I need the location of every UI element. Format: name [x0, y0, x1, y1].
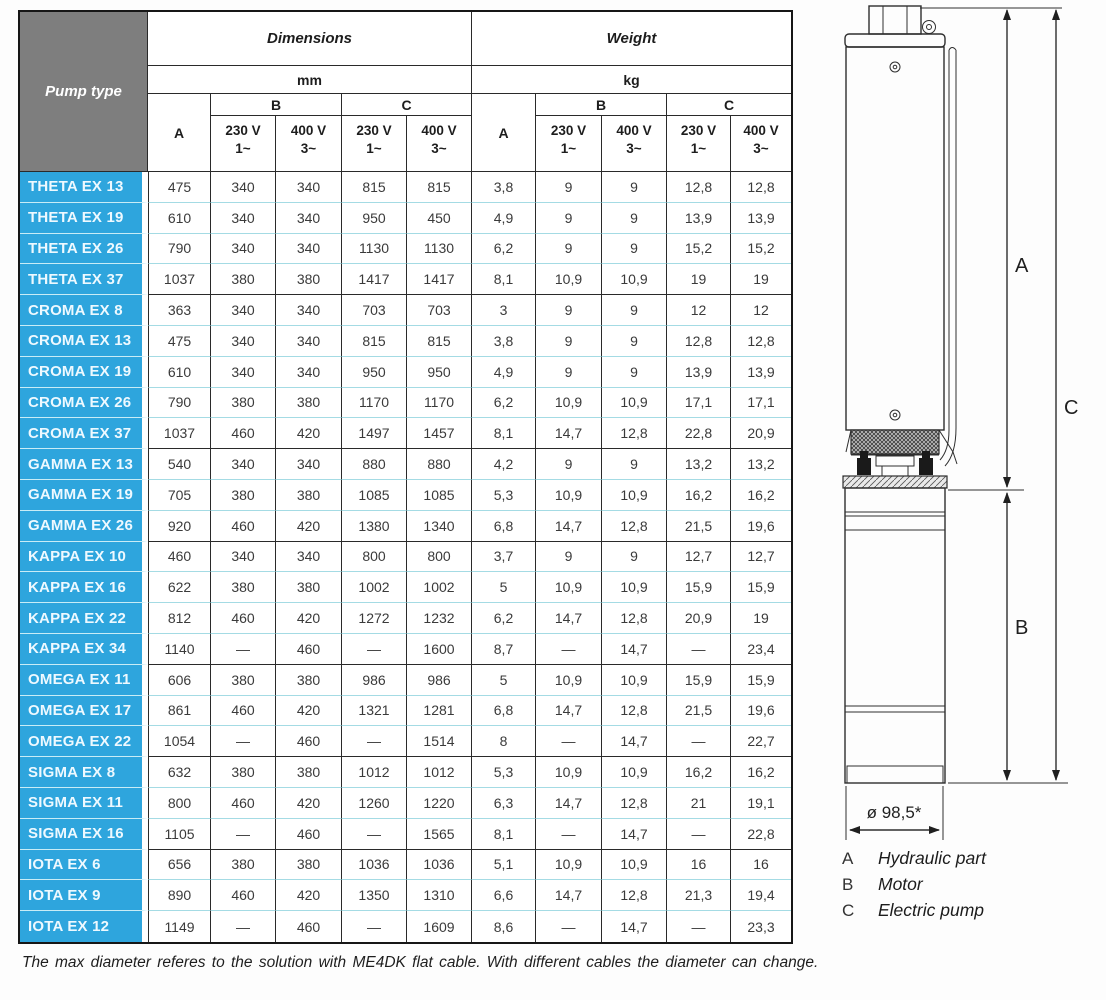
weight-value-cell: 13,9 — [731, 357, 791, 388]
diameter-label: ø 98,5* — [867, 803, 922, 822]
weight-value-cell: 14,7 — [536, 880, 602, 911]
dimension-value-cell: 460 — [148, 542, 211, 573]
weight-value-cell: 16,2 — [731, 480, 791, 511]
voltage-header-cell: 230 V1~ — [342, 116, 407, 172]
weight-value-cell: 8,6 — [472, 911, 536, 942]
dimension-value-cell: 1609 — [407, 911, 472, 942]
weight-value-cell: 14,7 — [602, 819, 667, 850]
pump-name-cell: OMEGA EX 11 — [20, 665, 148, 696]
weight-value-cell: 12,8 — [731, 326, 791, 357]
weight-value-cell: 13,2 — [731, 449, 791, 480]
dimension-value-cell: 340 — [276, 449, 342, 480]
table-row: OMEGA EX 17861460420132112816,814,712,82… — [20, 696, 791, 727]
pump-name-cell: SIGMA EX 8 — [20, 757, 148, 788]
dimension-value-cell: 460 — [211, 788, 276, 819]
weight-value-cell: 9 — [536, 234, 602, 265]
dimension-value-cell: 340 — [211, 357, 276, 388]
dimension-value-cell: 380 — [276, 388, 342, 419]
weight-value-cell: 12,8 — [602, 418, 667, 449]
dimension-value-cell: 861 — [148, 696, 211, 727]
weight-value-cell: 22,8 — [731, 819, 791, 850]
weight-value-cell: 15,9 — [667, 665, 731, 696]
weight-value-cell: 10,9 — [602, 264, 667, 295]
voltage-header-cell: 230 V1~ — [211, 116, 276, 172]
dimension-value-cell: 380 — [211, 665, 276, 696]
dimension-value-cell: 1012 — [342, 757, 407, 788]
weight-value-cell: 19,6 — [731, 696, 791, 727]
dimension-value-cell: 340 — [276, 203, 342, 234]
weight-value-cell: 9 — [602, 295, 667, 326]
table-row: THETA EX 196103403409504504,99913,913,9 — [20, 203, 791, 234]
weight-value-cell: 9 — [536, 357, 602, 388]
dimension-value-cell: 420 — [276, 511, 342, 542]
weight-value-cell: 16,2 — [667, 480, 731, 511]
weight-value-cell: 22,8 — [667, 418, 731, 449]
dimension-value-cell: 340 — [276, 295, 342, 326]
weight-value-cell: — — [536, 726, 602, 757]
weight-value-cell: 21 — [667, 788, 731, 819]
dimension-value-cell: 460 — [276, 726, 342, 757]
dimension-value-cell: 340 — [211, 326, 276, 357]
weight-value-cell: 15,2 — [667, 234, 731, 265]
dimension-value-cell: 705 — [148, 480, 211, 511]
legend-key: C — [842, 899, 878, 923]
voltage-header-cell: 400 V3~ — [731, 116, 791, 172]
dimension-value-cell: 1497 — [342, 418, 407, 449]
weight-group-header: Weight — [472, 12, 791, 66]
weight-value-cell: 5,3 — [472, 757, 536, 788]
weight-value-cell: 13,9 — [667, 357, 731, 388]
dimension-value-cell: 1037 — [148, 418, 211, 449]
dimension-value-cell: 1417 — [342, 264, 407, 295]
weight-value-cell: 21,3 — [667, 880, 731, 911]
weight-value-cell: 9 — [602, 172, 667, 203]
dimension-value-cell: 380 — [276, 665, 342, 696]
weight-value-cell: 20,9 — [667, 603, 731, 634]
weight-value-cell: 10,9 — [602, 665, 667, 696]
weight-value-cell: 6,8 — [472, 511, 536, 542]
dimension-value-cell: 986 — [342, 665, 407, 696]
legend-key: B — [842, 873, 878, 897]
unit-mm-header: mm — [148, 66, 472, 94]
dimension-value-cell: 380 — [211, 850, 276, 881]
dimension-value-cell: 380 — [211, 757, 276, 788]
dimension-value-cell: 632 — [148, 757, 211, 788]
dimension-value-cell: 460 — [211, 696, 276, 727]
weight-value-cell: 15,9 — [667, 572, 731, 603]
weight-value-cell: 12 — [667, 295, 731, 326]
dimension-value-cell: 950 — [342, 203, 407, 234]
table-row: GAMMA EX 135403403408808804,29913,213,2 — [20, 449, 791, 480]
dimension-value-cell: 340 — [211, 203, 276, 234]
dimension-value-cell: 1170 — [407, 388, 472, 419]
dimension-value-cell: 610 — [148, 203, 211, 234]
dimension-value-cell: 420 — [276, 880, 342, 911]
weight-value-cell: 10,9 — [536, 665, 602, 696]
dimension-value-cell: 815 — [407, 172, 472, 203]
pump-name-cell: KAPPA EX 22 — [20, 603, 148, 634]
pump-name-cell: KAPPA EX 16 — [20, 572, 148, 603]
table-row: CROMA EX 196103403409509504,99913,913,9 — [20, 357, 791, 388]
weight-value-cell: 10,9 — [536, 264, 602, 295]
pump-name-cell: CROMA EX 19 — [20, 357, 148, 388]
weight-value-cell: 3 — [472, 295, 536, 326]
table-row: THETA EX 26790340340113011306,29915,215,… — [20, 234, 791, 265]
dimension-value-cell: 363 — [148, 295, 211, 326]
dimension-value-cell: 1220 — [407, 788, 472, 819]
dimension-value-cell: 622 — [148, 572, 211, 603]
weight-value-cell: 23,4 — [731, 634, 791, 665]
dimension-value-cell: 1321 — [342, 696, 407, 727]
dimension-value-cell: 460 — [276, 819, 342, 850]
weight-value-cell: 19 — [731, 603, 791, 634]
dimension-value-cell: 890 — [148, 880, 211, 911]
dimension-value-cell: 610 — [148, 357, 211, 388]
weight-value-cell: 23,3 — [731, 911, 791, 942]
dim-c-header: C — [342, 94, 472, 116]
dimension-value-cell: 703 — [407, 295, 472, 326]
dimension-value-cell: 1310 — [407, 880, 472, 911]
pump-name-cell: CROMA EX 26 — [20, 388, 148, 419]
table-row: CROMA EX 371037460420149714578,114,712,8… — [20, 418, 791, 449]
dimension-value-cell: 1140 — [148, 634, 211, 665]
weight-value-cell: 17,1 — [667, 388, 731, 419]
dimension-value-cell: — — [211, 726, 276, 757]
weight-value-cell: 12 — [731, 295, 791, 326]
dimension-value-cell: — — [211, 634, 276, 665]
table-row: KAPPA EX 341140—460—16008,7—14,7—23,4 — [20, 634, 791, 665]
dimension-value-cell: 380 — [276, 264, 342, 295]
wt-b-header: B — [536, 94, 667, 116]
weight-value-cell: 12,8 — [602, 511, 667, 542]
header-row-groups: Pump type Dimensions Weight — [20, 12, 791, 66]
weight-value-cell: 9 — [602, 326, 667, 357]
dimension-value-cell: 812 — [148, 603, 211, 634]
weight-value-cell: 9 — [602, 234, 667, 265]
weight-value-cell: — — [536, 819, 602, 850]
dimension-value-cell: 380 — [276, 480, 342, 511]
dimension-value-cell: 1036 — [407, 850, 472, 881]
table-row: THETA EX 134753403408158153,89912,812,8 — [20, 172, 791, 203]
pump-name-cell: CROMA EX 13 — [20, 326, 148, 357]
table-row: IOTA EX 9890460420135013106,614,712,821,… — [20, 880, 791, 911]
weight-value-cell: 4,2 — [472, 449, 536, 480]
dimension-value-cell: 340 — [276, 357, 342, 388]
weight-value-cell: 9 — [602, 357, 667, 388]
dimension-value-cell: 1260 — [342, 788, 407, 819]
weight-value-cell: — — [667, 634, 731, 665]
weight-value-cell: 12,8 — [602, 696, 667, 727]
dimension-value-cell: 1232 — [407, 603, 472, 634]
weight-value-cell: 19,6 — [731, 511, 791, 542]
table-row: KAPPA EX 1662238038010021002510,910,915,… — [20, 572, 791, 603]
dimension-value-cell: 380 — [211, 572, 276, 603]
table-row: CROMA EX 83633403407037033991212 — [20, 295, 791, 326]
footer-note: The max diameter referes to the solution… — [22, 954, 852, 972]
motor-body — [845, 488, 945, 783]
pump-technical-drawing: A B C ø 98,5* — [816, 0, 1106, 850]
weight-value-cell: 16 — [731, 850, 791, 881]
voltage-header-cell: 230 V1~ — [667, 116, 731, 172]
dimension-value-cell: 986 — [407, 665, 472, 696]
dimension-value-cell: 1105 — [148, 819, 211, 850]
pump-type-header: Pump type — [20, 12, 148, 172]
pump-name-cell: KAPPA EX 10 — [20, 542, 148, 573]
weight-value-cell: 9 — [602, 449, 667, 480]
dimension-value-cell: 1281 — [407, 696, 472, 727]
dimension-value-cell: 340 — [276, 326, 342, 357]
dimension-value-cell: 790 — [148, 388, 211, 419]
weight-value-cell: 14,7 — [536, 788, 602, 819]
dimension-value-cell: 460 — [276, 911, 342, 942]
weight-value-cell: 9 — [536, 326, 602, 357]
legend-item: CElectric pump — [842, 898, 986, 924]
dimension-value-cell: 420 — [276, 418, 342, 449]
dimension-value-cell: 1350 — [342, 880, 407, 911]
dimension-value-cell: 800 — [407, 542, 472, 573]
pump-name-cell: THETA EX 19 — [20, 203, 148, 234]
dimension-value-cell: 380 — [211, 388, 276, 419]
table-row: IOTA EX 121149—460—16098,6—14,7—23,3 — [20, 911, 791, 942]
table-row: CROMA EX 134753403408158153,89912,812,8 — [20, 326, 791, 357]
dimension-value-cell: 1085 — [342, 480, 407, 511]
dimensions-group-header: Dimensions — [148, 12, 472, 66]
weight-value-cell: 12,8 — [667, 326, 731, 357]
dimension-value-cell: 800 — [342, 542, 407, 573]
weight-value-cell: 15,9 — [731, 572, 791, 603]
voltage-header-cell: 230 V1~ — [536, 116, 602, 172]
dimension-value-cell: 340 — [211, 172, 276, 203]
weight-value-cell: 8 — [472, 726, 536, 757]
weight-value-cell: 13,9 — [667, 203, 731, 234]
pump-name-cell: IOTA EX 9 — [20, 880, 148, 911]
diameter-dimension: ø 98,5* — [846, 786, 943, 840]
dimension-value-cell: 380 — [211, 480, 276, 511]
dimension-value-cell: 340 — [211, 449, 276, 480]
weight-value-cell: 20,9 — [731, 418, 791, 449]
weight-value-cell: 14,7 — [536, 511, 602, 542]
dimension-value-cell: 815 — [342, 326, 407, 357]
weight-value-cell: 4,9 — [472, 357, 536, 388]
pump-name-cell: THETA EX 37 — [20, 264, 148, 295]
weight-value-cell: 16 — [667, 850, 731, 881]
dimension-value-cell: 880 — [342, 449, 407, 480]
weight-value-cell: 3,7 — [472, 542, 536, 573]
dimension-value-cell: — — [211, 819, 276, 850]
dimension-value-cell: 1149 — [148, 911, 211, 942]
pump-name-cell: CROMA EX 8 — [20, 295, 148, 326]
weight-value-cell: 14,7 — [536, 603, 602, 634]
dimension-value-cell: 380 — [276, 572, 342, 603]
table-row: GAMMA EX 26920460420138013406,814,712,82… — [20, 511, 791, 542]
weight-value-cell: 10,9 — [536, 850, 602, 881]
table-row: OMEGA EX 221054—460—15148—14,7—22,7 — [20, 726, 791, 757]
weight-value-cell: 14,7 — [536, 696, 602, 727]
weight-value-cell: 10,9 — [536, 757, 602, 788]
voltage-header-cell: 400 V3~ — [276, 116, 342, 172]
dimension-value-cell: 1340 — [407, 511, 472, 542]
weight-value-cell: 10,9 — [602, 572, 667, 603]
pump-name-cell: GAMMA EX 19 — [20, 480, 148, 511]
dimension-value-cell: 1457 — [407, 418, 472, 449]
dimension-value-cell: 880 — [407, 449, 472, 480]
weight-value-cell: 8,1 — [472, 819, 536, 850]
weight-value-cell: 21,5 — [667, 696, 731, 727]
weight-value-cell: 6,6 — [472, 880, 536, 911]
table-row: SIGMA EX 161105—460—15658,1—14,7—22,8 — [20, 819, 791, 850]
weight-value-cell: 10,9 — [536, 388, 602, 419]
cable-guard — [940, 48, 956, 467]
pump-name-cell: OMEGA EX 17 — [20, 696, 148, 727]
pump-name-cell: THETA EX 13 — [20, 172, 148, 203]
weight-value-cell: 10,9 — [602, 480, 667, 511]
pump-name-cell: THETA EX 26 — [20, 234, 148, 265]
dim-a-header: A — [148, 94, 211, 172]
weight-value-cell: 15,2 — [731, 234, 791, 265]
weight-value-cell: 13,9 — [731, 203, 791, 234]
dimension-value-cell: 340 — [276, 542, 342, 573]
pump-discharge-head — [869, 6, 936, 34]
weight-value-cell: 10,9 — [602, 388, 667, 419]
dim-label-b: B — [1015, 617, 1028, 639]
weight-value-cell: 14,7 — [602, 634, 667, 665]
pump-name-cell: SIGMA EX 11 — [20, 788, 148, 819]
dimension-value-cell: 340 — [211, 295, 276, 326]
dimension-value-cell: 790 — [148, 234, 211, 265]
dimension-value-cell: 1037 — [148, 264, 211, 295]
weight-value-cell: 12,8 — [602, 880, 667, 911]
weight-value-cell: 12,8 — [667, 172, 731, 203]
weight-value-cell: 9 — [536, 203, 602, 234]
dimension-value-cell: 340 — [211, 234, 276, 265]
dimension-value-cell: 420 — [276, 788, 342, 819]
weight-value-cell: — — [667, 819, 731, 850]
dimension-value-cell: 475 — [148, 326, 211, 357]
pump-spec-table: Pump type Dimensions Weight mm kg A B C … — [18, 10, 793, 944]
dimension-value-cell: 1380 — [342, 511, 407, 542]
weight-value-cell: 12,8 — [602, 603, 667, 634]
dimension-value-cell: 380 — [276, 757, 342, 788]
weight-value-cell: 14,7 — [602, 726, 667, 757]
weight-value-cell: 14,7 — [536, 418, 602, 449]
dimension-value-cell: 800 — [148, 788, 211, 819]
weight-value-cell: — — [536, 911, 602, 942]
table-row: SIGMA EX 11800460420126012206,314,712,82… — [20, 788, 791, 819]
weight-value-cell: 13,2 — [667, 449, 731, 480]
legend-key: A — [842, 847, 878, 871]
weight-value-cell: 5,1 — [472, 850, 536, 881]
dimension-value-cell: 380 — [211, 264, 276, 295]
pump-name-cell: KAPPA EX 34 — [20, 634, 148, 665]
weight-value-cell: 5,3 — [472, 480, 536, 511]
weight-value-cell: 9 — [602, 203, 667, 234]
legend-label: Electric pump — [878, 900, 984, 920]
pump-name-cell: CROMA EX 37 — [20, 418, 148, 449]
dimension-value-cell: 460 — [211, 603, 276, 634]
dimension-value-cell: 950 — [342, 357, 407, 388]
weight-value-cell: 10,9 — [536, 480, 602, 511]
weight-value-cell: 4,9 — [472, 203, 536, 234]
unit-kg-header: kg — [472, 66, 791, 94]
dim-label-a: A — [1015, 255, 1029, 277]
weight-value-cell: — — [667, 911, 731, 942]
wt-a-header: A — [472, 94, 536, 172]
suction-strainer — [846, 430, 957, 477]
dimension-value-cell: — — [211, 911, 276, 942]
weight-value-cell: 19,1 — [731, 788, 791, 819]
dimension-value-cell: 1417 — [407, 264, 472, 295]
weight-value-cell: 10,9 — [536, 572, 602, 603]
diagram-legend: AHydraulic partBMotorCElectric pump — [842, 846, 986, 924]
wt-c-header: C — [667, 94, 791, 116]
dimension-value-cell: 1085 — [407, 480, 472, 511]
dimension-value-cell: 1130 — [407, 234, 472, 265]
weight-value-cell: 8,7 — [472, 634, 536, 665]
dimension-value-cell: 340 — [276, 234, 342, 265]
dim-label-c: C — [1064, 397, 1078, 419]
dimension-value-cell: 1002 — [342, 572, 407, 603]
pump-hydraulic-body — [845, 34, 945, 430]
legend-item: AHydraulic part — [842, 846, 986, 872]
dimension-value-cell: 1600 — [407, 634, 472, 665]
dimension-value-cell: — — [342, 911, 407, 942]
weight-value-cell: 6,2 — [472, 388, 536, 419]
dimension-value-cell: 703 — [342, 295, 407, 326]
weight-value-cell: 22,7 — [731, 726, 791, 757]
weight-value-cell: — — [536, 634, 602, 665]
pump-name-cell: OMEGA EX 22 — [20, 726, 148, 757]
weight-value-cell: 17,1 — [731, 388, 791, 419]
weight-value-cell: 9 — [536, 295, 602, 326]
pump-name-cell: SIGMA EX 16 — [20, 819, 148, 850]
table-row: KAPPA EX 104603403408008003,79912,712,7 — [20, 542, 791, 573]
weight-value-cell: 6,2 — [472, 603, 536, 634]
weight-value-cell: 9 — [536, 449, 602, 480]
weight-value-cell: 10,9 — [602, 757, 667, 788]
weight-value-cell: 16,2 — [731, 757, 791, 788]
weight-value-cell: 16,2 — [667, 757, 731, 788]
pump-name-cell: GAMMA EX 13 — [20, 449, 148, 480]
dimension-value-cell: 815 — [407, 326, 472, 357]
weight-value-cell: 19 — [667, 264, 731, 295]
dimension-value-cell: 460 — [276, 634, 342, 665]
dim-b-header: B — [211, 94, 342, 116]
weight-value-cell: 6,3 — [472, 788, 536, 819]
dimension-value-cell: 656 — [148, 850, 211, 881]
dimension-value-cell: 1002 — [407, 572, 472, 603]
dimension-value-cell: 460 — [211, 418, 276, 449]
dimension-value-cell: 475 — [148, 172, 211, 203]
dimension-value-cell: 340 — [276, 172, 342, 203]
dimension-value-cell: 460 — [211, 511, 276, 542]
weight-value-cell: 8,1 — [472, 264, 536, 295]
pump-name-cell: GAMMA EX 26 — [20, 511, 148, 542]
weight-value-cell: 14,7 — [602, 911, 667, 942]
weight-value-cell: 5 — [472, 572, 536, 603]
voltage-header-cell: 400 V3~ — [602, 116, 667, 172]
dimension-value-cell: 460 — [211, 880, 276, 911]
dimension-value-cell: 450 — [407, 203, 472, 234]
dimension-value-cell: 1054 — [148, 726, 211, 757]
weight-value-cell: 12,7 — [731, 542, 791, 573]
dimension-value-cell: 606 — [148, 665, 211, 696]
voltage-header-cell: 400 V3~ — [407, 116, 472, 172]
weight-value-cell: 8,1 — [472, 418, 536, 449]
weight-value-cell: 15,9 — [731, 665, 791, 696]
dimension-value-cell: 1130 — [342, 234, 407, 265]
table-row: GAMMA EX 19705380380108510855,310,910,91… — [20, 480, 791, 511]
weight-value-cell: 9 — [536, 172, 602, 203]
